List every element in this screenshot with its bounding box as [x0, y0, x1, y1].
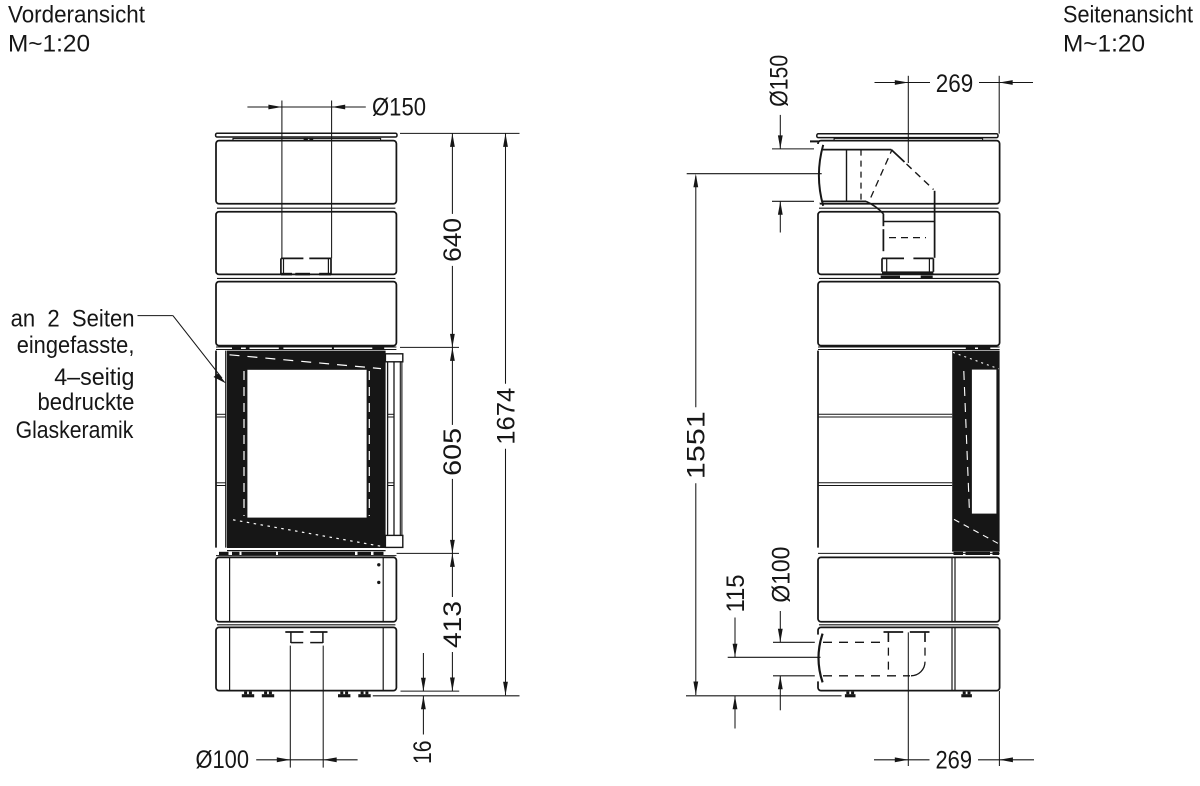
svg-text:Ø100: Ø100 [196, 746, 250, 774]
svg-text:4–seitig: 4–seitig [54, 364, 134, 391]
svg-text:Seitenansicht: Seitenansicht [1063, 2, 1193, 29]
svg-text:413: 413 [439, 601, 467, 648]
svg-text:269: 269 [936, 747, 973, 775]
svg-text:eingefasste,: eingefasste, [17, 332, 135, 359]
svg-text:M~1:20: M~1:20 [1063, 31, 1145, 58]
svg-text:bedruckte: bedruckte [38, 389, 135, 416]
svg-text:1674: 1674 [492, 388, 520, 445]
svg-text:Ø150: Ø150 [766, 55, 794, 107]
svg-text:16: 16 [409, 741, 437, 765]
svg-text:605: 605 [439, 428, 467, 476]
svg-text:an 2 Seiten: an 2 Seiten [11, 306, 135, 333]
svg-text:Glaskeramik: Glaskeramik [16, 417, 135, 444]
svg-text:1551: 1551 [683, 411, 711, 479]
svg-text:Ø150: Ø150 [372, 94, 426, 122]
svg-text:269: 269 [936, 70, 974, 98]
svg-text:115: 115 [722, 575, 750, 613]
svg-text:Ø100: Ø100 [767, 547, 795, 603]
svg-text:Vorderansicht: Vorderansicht [8, 2, 145, 29]
svg-text:640: 640 [439, 218, 467, 262]
svg-text:M~1:20: M~1:20 [8, 31, 90, 58]
